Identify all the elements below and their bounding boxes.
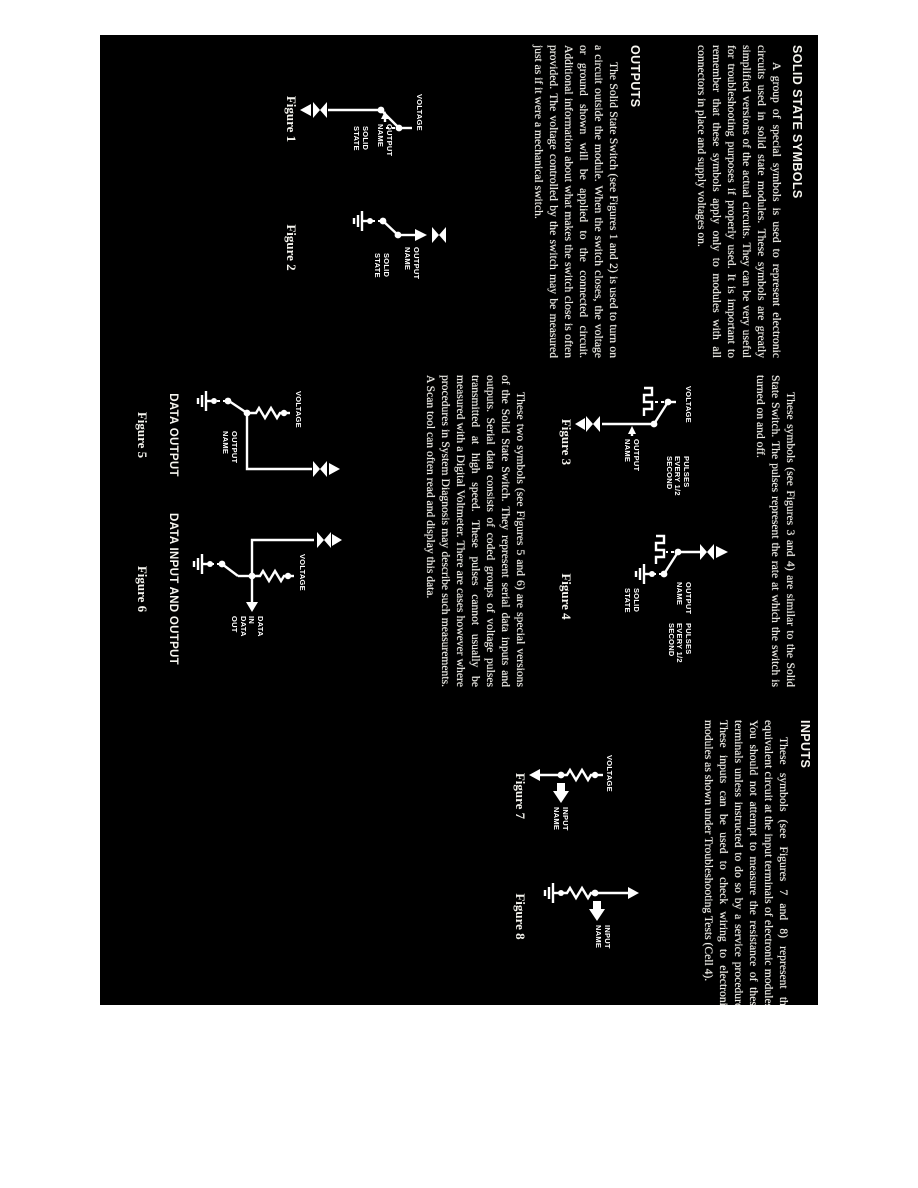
paper-background: SOLID STATE SYMBOLS A group of special s… (0, 0, 918, 1188)
section-heading-solid-state-symbols: SOLID STATE SYMBOLS (790, 45, 804, 358)
scanned-page: SOLID STATE SYMBOLS A group of special s… (100, 35, 818, 1005)
connector-icon (700, 544, 714, 560)
label-pulses: PULSES EVERY 1/2 SECOND (666, 623, 692, 663)
figure-6-title: DATA INPUT AND OUTPUT (167, 496, 179, 682)
figure-6-caption: Figure 6 (134, 518, 150, 660)
label-output-name: OUTPUT NAME (675, 582, 692, 614)
section-heading-inputs: INPUTS (798, 720, 812, 1005)
paragraph-outputs: The Solid State Switch (see Figures 1 an… (531, 45, 621, 358)
label-solid-state: SOLID STATE (623, 588, 640, 613)
figure-4-caption: Figure 4 (558, 528, 574, 665)
figure-6-diagram: VOLTAGE DATA IN DATA OUT (182, 518, 344, 660)
module-dashed-box (533, 866, 618, 967)
figure-6-circuit (182, 518, 344, 660)
figure-3-diagram: VOLTAGE PULSES EVERY 1/2 SECOND OUTPUT N… (574, 378, 698, 506)
label-output-name: OUTPUT NAME (221, 431, 238, 463)
label-voltage: VOLTAGE (297, 554, 306, 591)
connector-icon (432, 227, 446, 243)
label-input-name: INPUT NAME (594, 925, 611, 949)
label-data-in-out: DATA IN DATA OUT (230, 616, 264, 637)
figure-1-diagram: VOLTAGE OUTPUT NAME SOLID STATE (299, 68, 427, 170)
figure-1-caption: Figure 1 (283, 68, 299, 170)
arrow-up-icon (329, 463, 340, 475)
figure-7-caption: Figure 7 (512, 745, 528, 847)
page-rotated-content: SOLID STATE SYMBOLS A group of special s… (100, 35, 818, 1005)
label-output-name: OUTPUT NAME (403, 247, 420, 279)
arrow-down-icon (529, 769, 540, 781)
section-heading-outputs: OUTPUTS (628, 45, 642, 358)
figure-5-circuit (184, 377, 342, 493)
figure-3-caption: Figure 3 (558, 378, 574, 506)
label-voltage: VOLTAGE (683, 386, 692, 423)
figure-8-circuit (531, 865, 641, 968)
paragraph-solid-state-symbols: A group of special symbols is used to re… (694, 45, 784, 358)
label-input-name: INPUT NAME (552, 807, 569, 831)
figure-5-diagram: VOLTAGE OUTPUT NAME (184, 377, 342, 493)
connector-icon (313, 461, 327, 477)
connector-icon (317, 532, 331, 548)
figure-8-diagram: INPUT NAME (531, 865, 641, 968)
connector-icon (586, 416, 600, 432)
figure-1-circuit (299, 68, 427, 170)
arrow-up-icon (628, 887, 639, 899)
figure-2-caption: Figure 2 (283, 195, 299, 300)
arrow-down-icon (575, 418, 585, 430)
column-2-paragraph-1: These symbols (see Figures 3 and 4) are … (753, 375, 798, 687)
connector-icon (313, 102, 327, 118)
figure-7-diagram: VOLTAGE INPUT NAME (527, 745, 619, 847)
label-voltage: VOLTAGE (293, 391, 302, 428)
column-3: INPUTS These symbols (see Figures 7 and … (701, 720, 812, 1005)
figure-8-caption: Figure 8 (512, 865, 528, 968)
column-1: SOLID STATE SYMBOLS A group of special s… (531, 45, 804, 358)
arrow-down-icon (300, 104, 311, 116)
label-solid-state: SOLID STATE (352, 126, 369, 151)
figure-5-caption: Figure 5 (134, 377, 150, 493)
label-voltage: VOLTAGE (604, 755, 613, 792)
arrow-up-icon (716, 546, 728, 558)
figure-2-diagram: OUTPUT NAME SOLID STATE (340, 195, 452, 300)
label-voltage: VOLTAGE (414, 94, 423, 131)
arrow-up-icon (332, 534, 342, 546)
figure-4-diagram: OUTPUT NAME PULSES EVERY 1/2 SECOND SOLI… (616, 528, 730, 665)
column-2-paragraph-2: These two symbols (see Figures 5 and 6) … (423, 375, 528, 687)
paragraph-figures-3-4: These symbols (see Figures 3 and 4) are … (753, 375, 798, 687)
label-pulses: PULSES EVERY 1/2 SECOND (664, 456, 690, 496)
figure-2-circuit (340, 195, 452, 300)
paragraph-inputs: These symbols (see Figures 7 and 8) repr… (701, 720, 791, 1005)
figure-5-title: DATA OUTPUT (167, 365, 179, 505)
label-output-name: OUTPUT NAME (623, 439, 640, 471)
label-solid-state: SOLID STATE (373, 253, 390, 278)
label-output-name: OUTPUT NAME (376, 124, 393, 156)
paragraph-figures-5-6: These two symbols (see Figures 5 and 6) … (423, 375, 528, 687)
